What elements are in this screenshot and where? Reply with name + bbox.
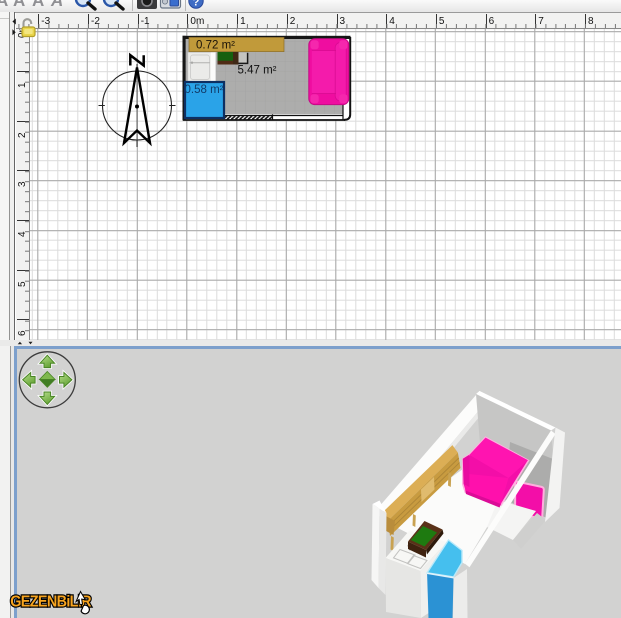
svg-text:5.47 m²: 5.47 m² <box>238 64 277 76</box>
svg-text:0.58 m²: 0.58 m² <box>185 84 224 96</box>
svg-text:0.72 m²: 0.72 m² <box>196 40 235 52</box>
